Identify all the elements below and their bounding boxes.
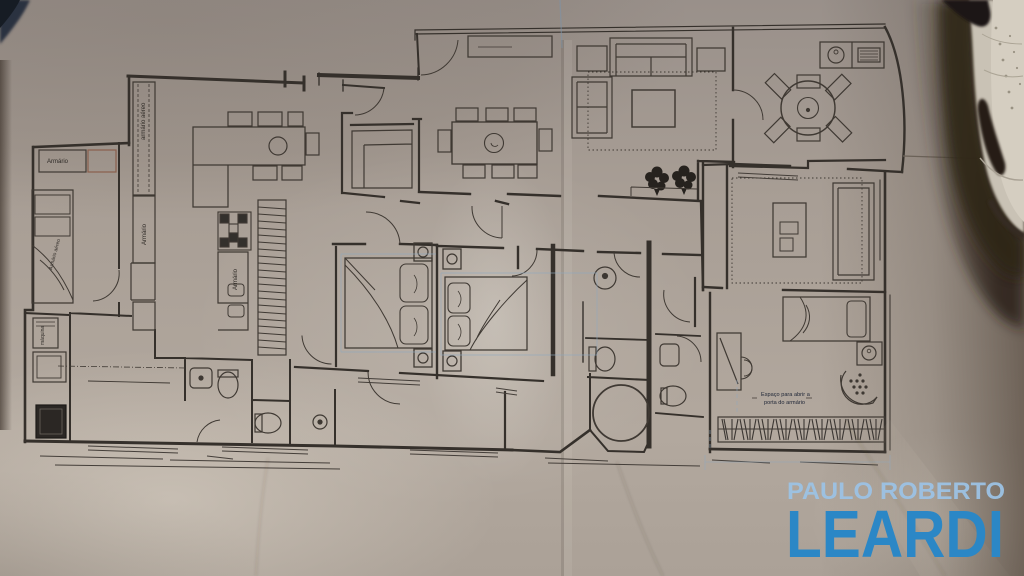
svg-text:LEARDI: LEARDI bbox=[786, 497, 1004, 572]
svg-text:Armário: Armário bbox=[47, 159, 69, 165]
svg-text:máquina: máquina bbox=[40, 326, 46, 345]
svg-text:Armário: Armário bbox=[233, 268, 239, 290]
svg-text:Armário: Armário bbox=[142, 223, 148, 245]
svg-text:porta do armário: porta do armário bbox=[764, 400, 805, 406]
svg-text:Espaço para abrir a: Espaço para abrir a bbox=[761, 392, 811, 398]
svg-text:armário aéreo: armário aéreo bbox=[141, 102, 147, 140]
